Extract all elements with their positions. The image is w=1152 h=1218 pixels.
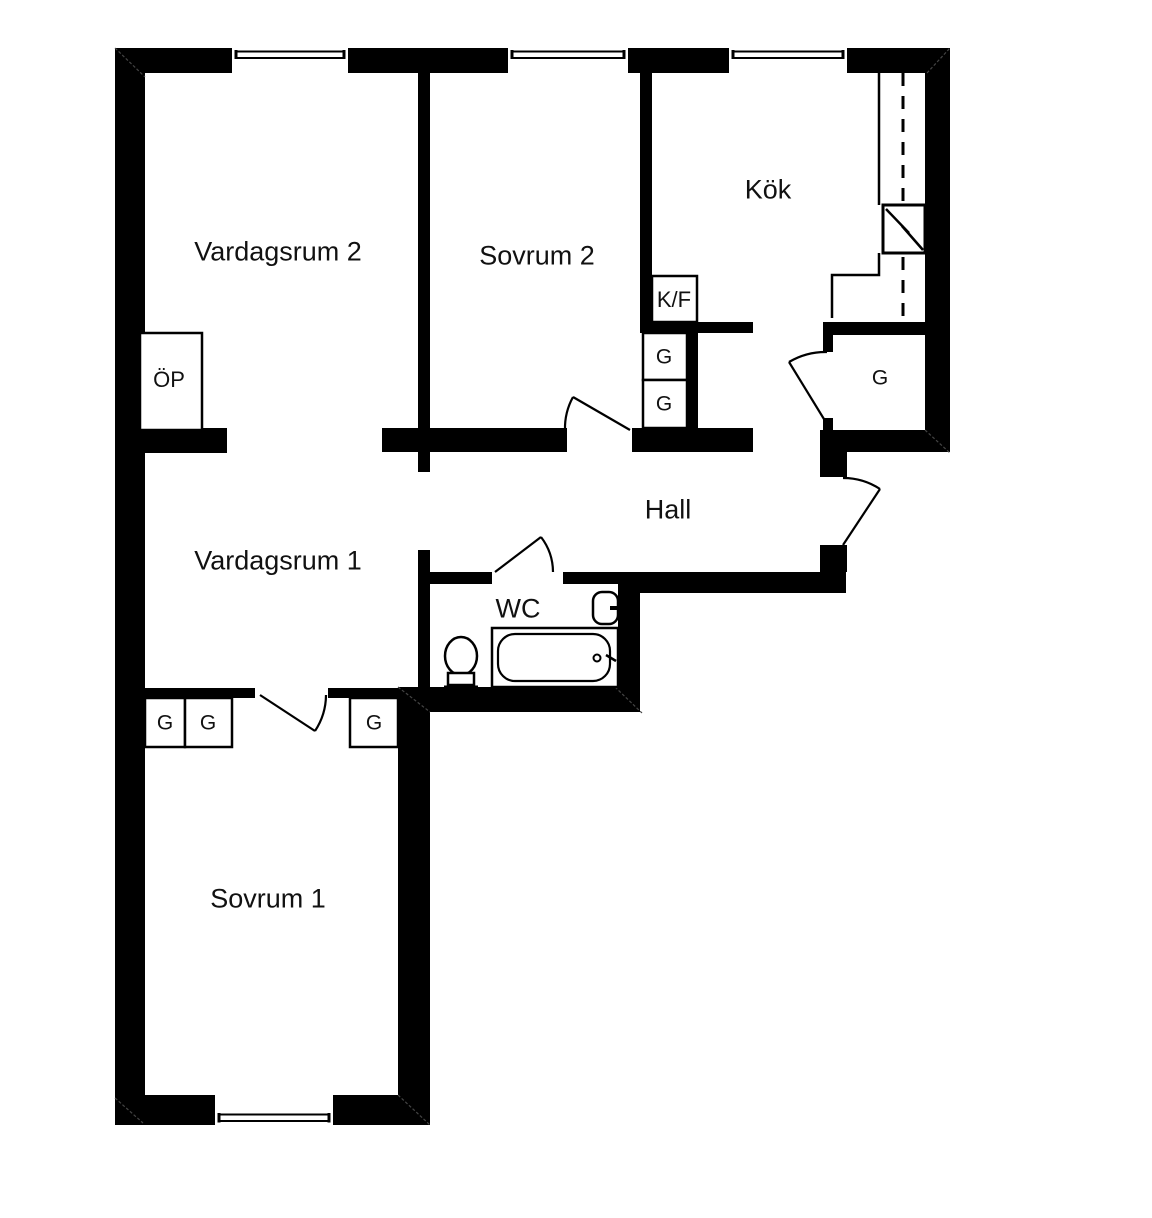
wall-sovrum1-right-exterior [398, 687, 430, 1125]
wall-sovrum2-bottom-right [632, 428, 753, 452]
door-wc [495, 537, 553, 572]
floorplan-drawing [0, 0, 1152, 1218]
kitchen-counter [832, 253, 879, 318]
window-symbol-vardagsrum2 [232, 48, 348, 73]
wall-kitchen-right-exterior [925, 48, 950, 452]
window-symbol-sovrum1 [215, 1095, 333, 1125]
wall-hall-closet-jamb-top [823, 335, 833, 352]
wall-wc-bottom [398, 687, 640, 712]
wall-entrance-stub-bottom [820, 545, 847, 572]
wall-wc-top-right [563, 572, 618, 584]
wall-entrance-stub-top [820, 452, 847, 477]
wall-sovrum1-divider-left [145, 688, 255, 698]
room-label-sovrum-1: Sovrum 1 [210, 886, 326, 913]
fireplace-label: ÖP [153, 369, 185, 391]
wardrobe-label-sovrum1-3: G [366, 713, 382, 734]
wall-wc-top-left [430, 572, 492, 584]
room-label-hall: Hall [645, 497, 692, 524]
wardrobe-label-sovrum2-1: G [656, 347, 672, 368]
door-entrance [843, 478, 880, 545]
door-sovrum2 [565, 397, 630, 430]
bathtub-symbol [492, 628, 618, 687]
wall-sovrum1-divider-right [328, 688, 398, 698]
washbasin-symbol [593, 592, 622, 624]
wardrobe-label-sovrum1-2: G [200, 713, 216, 734]
wall-wc-left [418, 550, 430, 690]
wall-vardagsrum2-sovrum2 [418, 73, 430, 428]
wall-under-kf [640, 322, 753, 333]
wall-sovrum2-kok [640, 73, 652, 332]
wardrobe-label-hall: G [872, 368, 888, 389]
wall-under-hall-closet [820, 430, 950, 452]
wall-hall-v1-stub [418, 452, 430, 472]
room-label-sovrum-2: Sovrum 2 [479, 243, 595, 270]
wall-hall-bottom [618, 572, 846, 593]
room-label-vardagsrum-1: Vardagsrum 1 [194, 548, 362, 575]
window-symbol-sovrum2 [508, 48, 628, 73]
window-symbol-kok [729, 48, 847, 73]
toilet-symbol [444, 637, 478, 687]
room-label-vardagsrum-2: Vardagsrum 2 [194, 239, 362, 266]
wardrobe-label-sovrum2-2: G [656, 394, 672, 415]
door-sovrum1 [260, 695, 326, 731]
wall-right-of-g-closets [687, 333, 698, 428]
walls [115, 48, 950, 1125]
wardrobe-label-sovrum1-1: G [157, 713, 173, 734]
kitchen-sink-symbol [883, 205, 925, 253]
wall-sovrum2-bottom-left [382, 428, 567, 452]
room-label-wc: WC [496, 596, 541, 623]
wall-hall-closet-top [823, 322, 927, 335]
wall-left-exterior [115, 48, 145, 1125]
fridge-freezer-label: K/F [657, 289, 691, 311]
room-label-kok: Kök [745, 177, 792, 204]
wall-vardagsrum-divider [115, 428, 227, 453]
door-hall-closet [789, 352, 827, 424]
floorplan-page: Vardagsrum 2 Sovrum 2 Kök Hall Vardagsru… [0, 0, 1152, 1218]
